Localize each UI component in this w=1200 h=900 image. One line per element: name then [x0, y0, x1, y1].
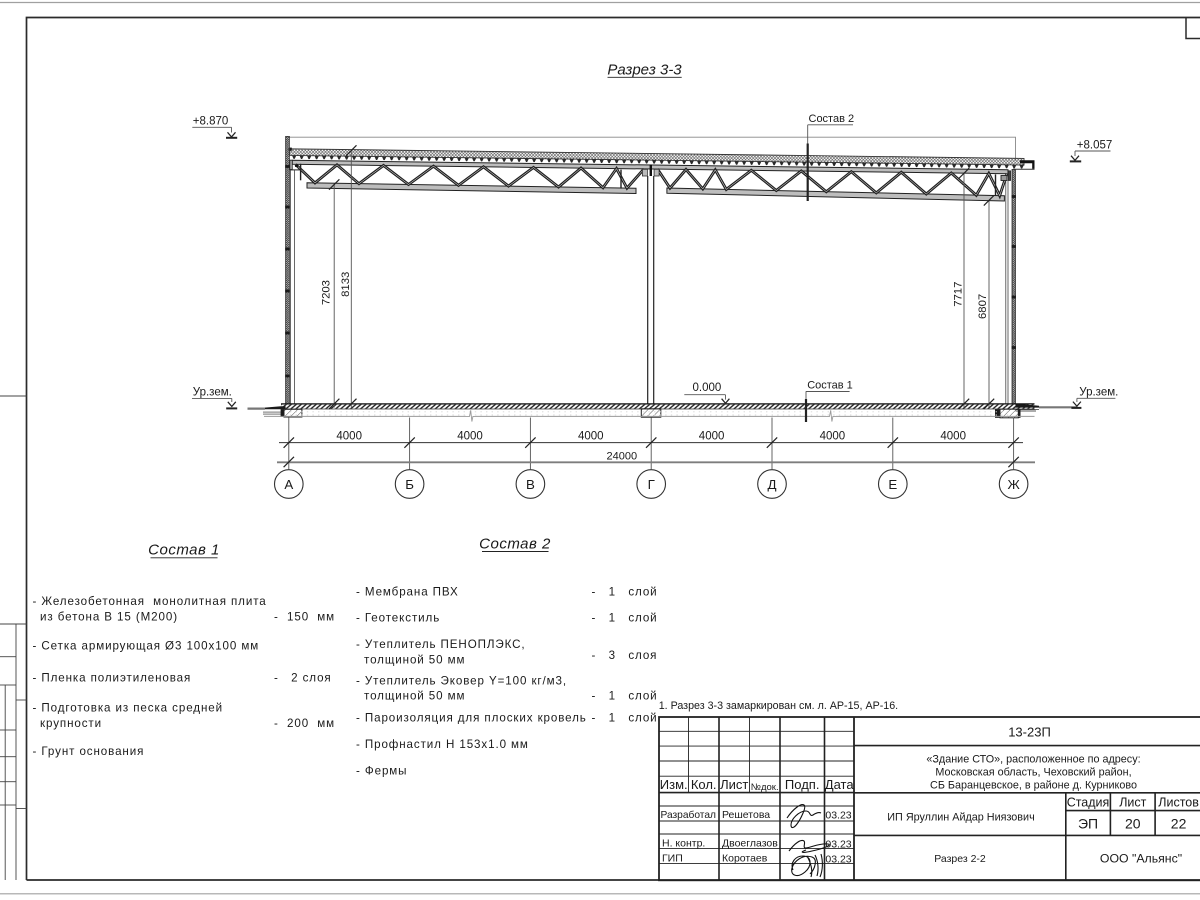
- svg-text:+8.870: +8.870: [193, 116, 229, 128]
- svg-text:Ж: Ж: [1007, 477, 1020, 492]
- svg-text:- 1 слой: - 1 слой: [592, 689, 658, 702]
- svg-text:- Пароизоляция для плоских кро: - Пароизоляция для плоских кровель: [356, 712, 587, 725]
- svg-text:- 200 мм: - 200 мм: [274, 717, 335, 730]
- svg-text:- Пленка полиэтиленовая: - Пленка полиэтиленовая: [33, 672, 192, 685]
- svg-text:Б: Б: [405, 477, 414, 492]
- svg-text:1. Разрез 3-3 замаркирован см.: 1. Разрез 3-3 замаркирован см. л. АР-15,…: [659, 700, 898, 712]
- svg-text:Дата: Дата: [825, 777, 855, 792]
- svg-text:Разрез 2-2: Разрез 2-2: [934, 853, 986, 865]
- svg-text:Подп.: Подп.: [785, 777, 820, 792]
- svg-text:20: 20: [1125, 816, 1141, 832]
- svg-text:4000: 4000: [940, 430, 966, 442]
- svg-text:03.23: 03.23: [825, 810, 851, 822]
- svg-text:- Фермы: - Фермы: [356, 764, 407, 777]
- svg-text:№док.: №док.: [751, 782, 779, 793]
- svg-text:толщиной 50 мм: толщиной 50 мм: [364, 653, 465, 666]
- svg-text:- 2 слоя: - 2 слоя: [274, 672, 332, 685]
- svg-text:Коротаев: Коротаев: [722, 853, 768, 865]
- svg-text:4000: 4000: [699, 430, 725, 442]
- svg-text:Г: Г: [648, 477, 655, 492]
- svg-text:+8.057: +8.057: [1077, 139, 1113, 151]
- svg-text:из бетона В 15 (М200): из бетона В 15 (М200): [40, 610, 178, 623]
- svg-text:крупности: крупности: [40, 717, 102, 730]
- svg-text:4000: 4000: [820, 430, 846, 442]
- svg-text:4000: 4000: [578, 430, 604, 442]
- svg-text:24000: 24000: [607, 450, 638, 462]
- svg-text:0.000: 0.000: [693, 382, 722, 394]
- svg-text:13-23П: 13-23П: [1008, 724, 1051, 739]
- svg-text:4000: 4000: [457, 430, 483, 442]
- svg-text:- 1 слой: - 1 слой: [592, 585, 658, 598]
- svg-text:03.23: 03.23: [825, 853, 851, 865]
- svg-text:4000: 4000: [336, 430, 362, 442]
- svg-text:- Железобетонная монолитная п: - Железобетонная монолитная плита: [33, 595, 267, 608]
- svg-text:А: А: [284, 477, 293, 492]
- svg-text:«Здание СТО», расположенное по: «Здание СТО», расположенное по адресу:: [926, 753, 1140, 765]
- svg-text:- Профнастил Н 153х1.0 мм: - Профнастил Н 153х1.0 мм: [356, 738, 529, 751]
- svg-text:Лист: Лист: [720, 777, 748, 792]
- svg-text:ГИП: ГИП: [662, 853, 683, 865]
- svg-text:Двоеглазов: Двоеглазов: [722, 838, 778, 850]
- svg-text:- Подготовка из песка средней: - Подготовка из песка средней: [33, 702, 223, 715]
- svg-text:Стадия: Стадия: [1067, 796, 1110, 810]
- svg-text:Д: Д: [767, 477, 776, 492]
- svg-text:7203: 7203: [320, 280, 332, 305]
- svg-text:- Сетка армирующая Ø3 100х100: - Сетка армирующая Ø3 100х100 мм: [33, 639, 260, 652]
- svg-text:Н. контр.: Н. контр.: [662, 838, 705, 850]
- svg-text:Состав 2: Состав 2: [809, 113, 855, 125]
- svg-text:толщиной 50 мм: толщиной 50 мм: [364, 689, 465, 702]
- svg-text:22: 22: [1171, 816, 1187, 832]
- svg-text:- Утеплитель ПЕНОПЛЭКС,: - Утеплитель ПЕНОПЛЭКС,: [356, 638, 526, 651]
- svg-text:Е: Е: [888, 477, 897, 492]
- svg-text:Ур.зем.: Ур.зем.: [1079, 386, 1118, 398]
- svg-text:6807: 6807: [977, 294, 989, 319]
- svg-text:- 1 слой: - 1 слой: [592, 712, 658, 725]
- svg-text:Московская область, Чеховский: Московская область, Чеховский район,: [935, 766, 1131, 778]
- svg-text:Листов: Листов: [1158, 796, 1199, 810]
- svg-text:ЭП: ЭП: [1078, 816, 1098, 832]
- svg-text:- 1 слой: - 1 слой: [592, 612, 658, 625]
- svg-text:- 150 мм: - 150 мм: [274, 610, 335, 623]
- svg-text:Лист: Лист: [1119, 796, 1146, 810]
- svg-text:- Геотекстиль: - Геотекстиль: [356, 612, 440, 625]
- svg-text:Кол.: Кол.: [691, 777, 717, 792]
- svg-text:- Грунт основания: - Грунт основания: [33, 745, 145, 758]
- svg-text:Решетова: Решетова: [722, 809, 770, 821]
- svg-text:В: В: [526, 477, 535, 492]
- svg-text:ИП Яруллин Айдар Ниязович: ИП Яруллин Айдар Ниязович: [887, 811, 1034, 823]
- svg-text:Ур.зем.: Ур.зем.: [193, 387, 232, 399]
- svg-text:Разработал: Разработал: [661, 809, 717, 821]
- svg-text:- 3 слоя: - 3 слоя: [592, 649, 658, 662]
- svg-text:Состав 2: Состав 2: [479, 535, 551, 552]
- svg-text:Состав 1: Состав 1: [148, 542, 220, 559]
- svg-text:Состав 1: Состав 1: [807, 380, 853, 392]
- svg-text:ООО "Альянс": ООО "Альянс": [1100, 852, 1182, 866]
- svg-text:Изм.: Изм.: [660, 777, 688, 792]
- svg-text:- Утеплитель Эковер Y=100 кг/м: - Утеплитель Эковер Y=100 кг/м3,: [356, 674, 567, 687]
- svg-text:Разрез 3-3: Разрез 3-3: [607, 62, 682, 79]
- svg-text:7717: 7717: [952, 282, 964, 307]
- svg-text:- Мембрана ПВХ: - Мембрана ПВХ: [356, 585, 459, 598]
- svg-text:СБ Баранцевское, в районе д. К: СБ Баранцевское, в районе д. Курниково: [930, 779, 1137, 791]
- svg-text:8133: 8133: [340, 272, 352, 297]
